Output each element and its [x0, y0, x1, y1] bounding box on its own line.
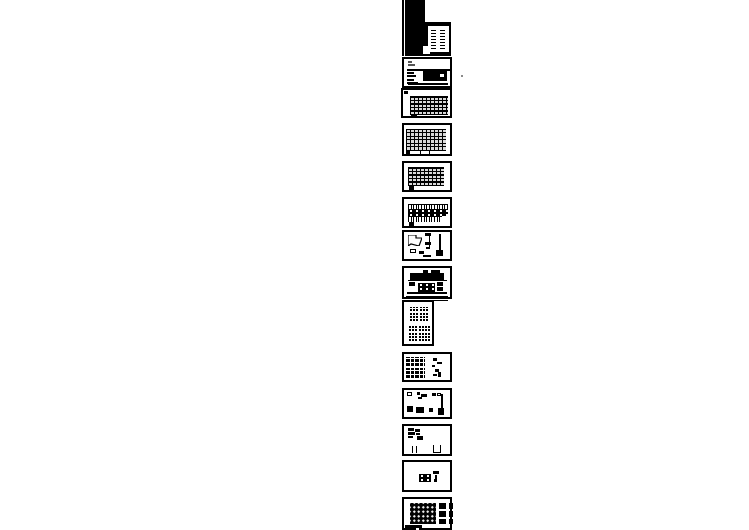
- baseline: [408, 280, 447, 281]
- block: [409, 282, 415, 286]
- detail-mark: [433, 358, 437, 361]
- list-mark: [408, 428, 414, 431]
- detail-mark: [438, 372, 441, 377]
- legend-block: [449, 503, 453, 509]
- black-square: [407, 406, 413, 412]
- framing-grid: [408, 167, 444, 186]
- schedule-table: [406, 357, 425, 366]
- drawing-list-column: [431, 28, 436, 49]
- sheet-12-details[interactable]: [402, 424, 452, 456]
- title-mark: [408, 64, 415, 66]
- block: [437, 287, 443, 291]
- detail-mark: [437, 362, 442, 364]
- sheet-06-framing-plan[interactable]: [402, 197, 452, 228]
- detail-mark: [423, 255, 431, 257]
- tab-mark: [406, 150, 410, 154]
- framing-grid: [406, 129, 446, 151]
- drawing-list-column: [440, 28, 445, 49]
- text-bar: [407, 75, 416, 77]
- text-bar: [407, 72, 414, 74]
- legend-block: [439, 511, 446, 517]
- small-box: [407, 392, 412, 396]
- corner-mark: [404, 91, 408, 94]
- sheet-11-details[interactable]: [402, 388, 452, 419]
- footer-line: [406, 296, 448, 298]
- column-line: [412, 446, 413, 453]
- detail-mark: [426, 247, 430, 249]
- sheet-02-notes[interactable]: [402, 57, 452, 88]
- tick: [435, 475, 437, 479]
- detail-mark: [433, 374, 437, 376]
- legend-block: [449, 519, 453, 524]
- detail-mark: [418, 397, 422, 399]
- detail-mark: [417, 392, 420, 395]
- left-edge-line: [402, 0, 404, 56]
- sheet-03-framing-plan[interactable]: [401, 88, 452, 118]
- drawing-preview-canvas: [0, 0, 749, 530]
- list-mark: [408, 436, 413, 438]
- dotted-strip: [418, 283, 435, 292]
- pile-grid: [410, 503, 436, 524]
- tab-mark: [409, 222, 414, 226]
- detail-mark: [416, 407, 424, 413]
- sheet-09-elevations-portrait[interactable]: [402, 300, 434, 346]
- table-gap: [440, 74, 444, 77]
- detail-mark: [425, 242, 431, 245]
- building-elevation: [410, 307, 428, 321]
- block: [437, 282, 443, 286]
- top-extension-line: [434, 300, 448, 301]
- sheet-08-details[interactable]: [402, 266, 452, 299]
- note-box: [420, 150, 430, 155]
- list-mark: [415, 429, 420, 432]
- sheet-14-pile-layout[interactable]: [402, 497, 452, 530]
- baseline: [407, 292, 447, 294]
- detail-mark: [419, 251, 424, 254]
- small-box: [410, 249, 416, 253]
- stray-dot: [461, 75, 463, 77]
- bottom-bar: [408, 83, 448, 85]
- sheet-13-details[interactable]: [402, 460, 452, 492]
- legend-block: [449, 511, 453, 517]
- detail-mark: [434, 479, 437, 482]
- dense-band: [408, 209, 448, 216]
- building-elevation: [409, 325, 430, 341]
- list-mark: [417, 436, 423, 440]
- corner-bar: [405, 525, 422, 530]
- framing-grid: [410, 96, 448, 115]
- detail-mark: [432, 365, 435, 367]
- sheet-07-details[interactable]: [402, 230, 452, 261]
- u-channel-detail: [433, 445, 441, 453]
- tab-mark: [411, 115, 417, 118]
- sheet-05-framing-plan[interactable]: [402, 161, 452, 192]
- column-line: [416, 446, 417, 453]
- cover-panel-step: [423, 46, 430, 54]
- detail-outline: [408, 235, 422, 246]
- detail-mark: [429, 408, 433, 412]
- tab-mark: [409, 186, 414, 190]
- sheet-01-cover[interactable]: [402, 0, 452, 56]
- detail-blob: [436, 250, 443, 256]
- schedule-table: [406, 368, 425, 378]
- list-mark: [408, 432, 415, 435]
- text-bar: [407, 79, 414, 81]
- sheet-10-tables[interactable]: [402, 352, 452, 382]
- detail-blob: [438, 408, 444, 415]
- sheet-04-framing-plan[interactable]: [402, 123, 452, 156]
- legend-block: [439, 503, 446, 509]
- detail-mark: [432, 393, 436, 396]
- legend-block: [439, 519, 446, 524]
- detail-blob: [419, 474, 431, 482]
- dark-strip: [410, 273, 444, 280]
